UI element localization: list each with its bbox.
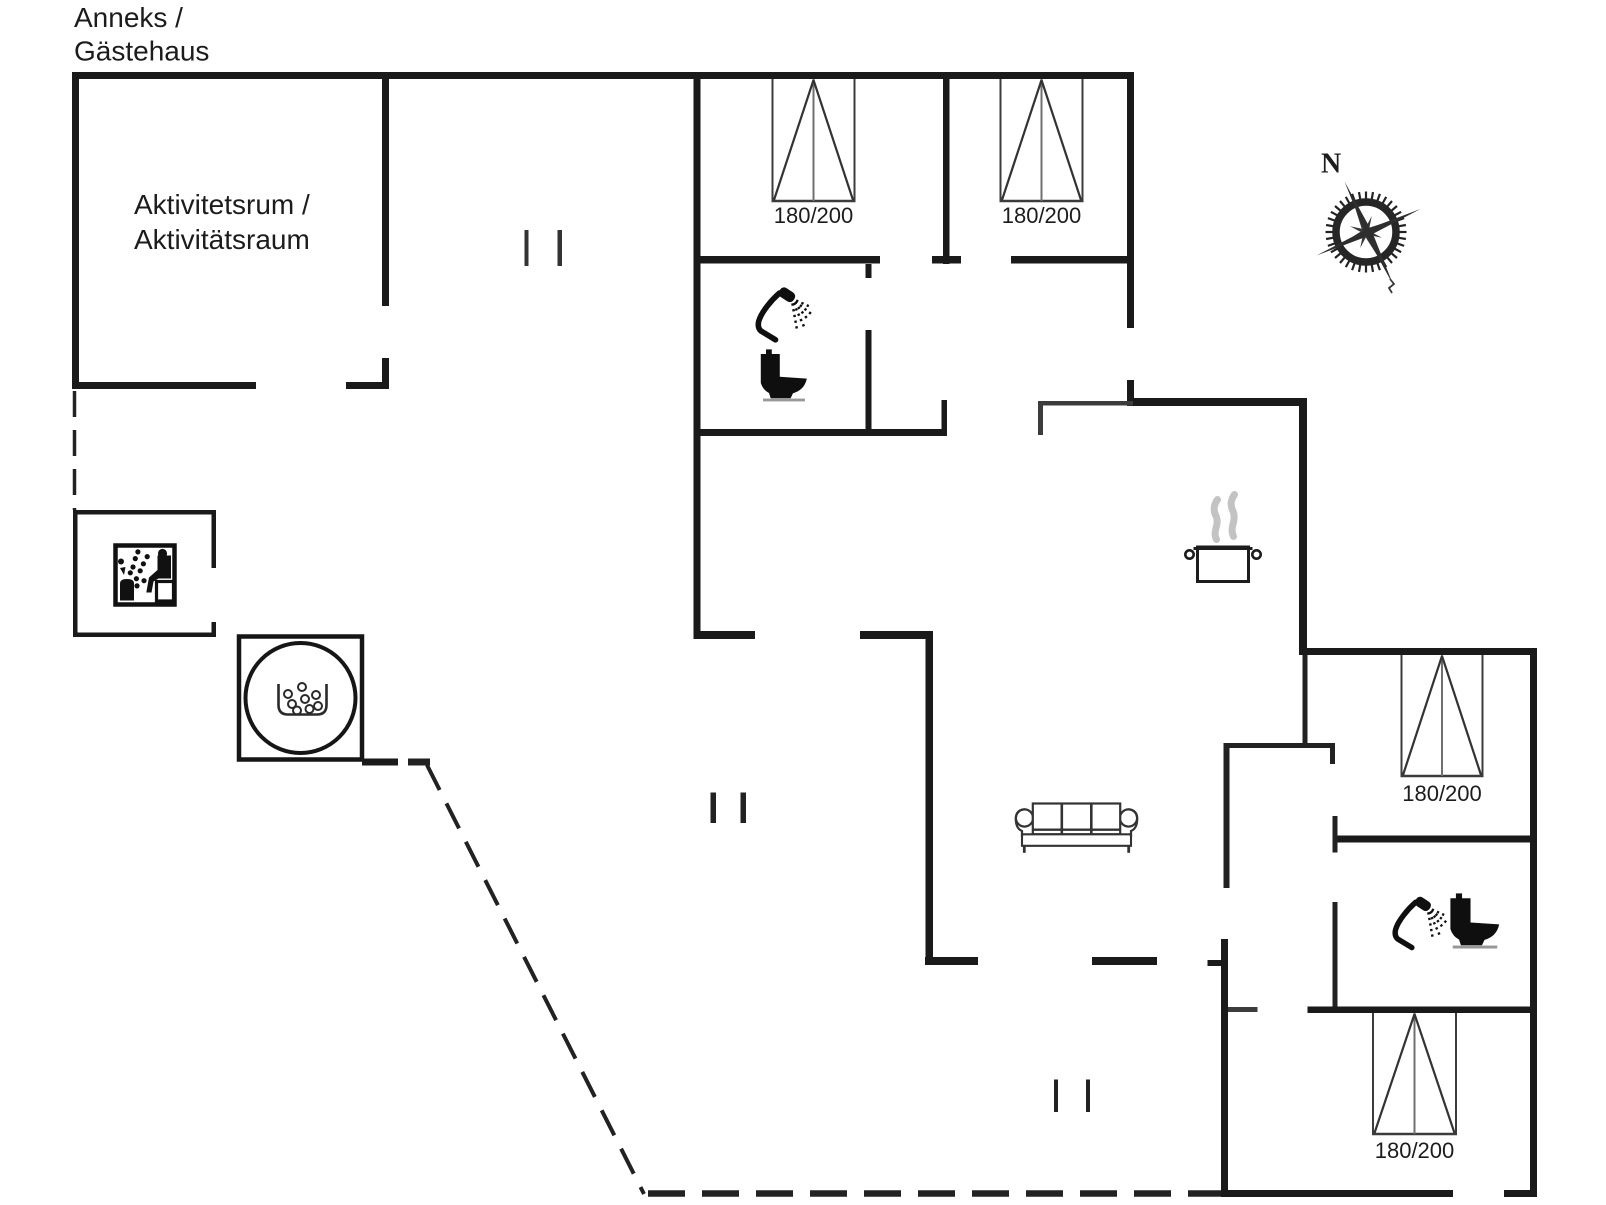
svg-text:Aktivitetsrum /: Aktivitetsrum / xyxy=(134,189,310,220)
svg-text:Gästehaus: Gästehaus xyxy=(74,36,209,67)
svg-text:180/200: 180/200 xyxy=(1375,1138,1455,1163)
svg-text:180/200: 180/200 xyxy=(1002,203,1082,228)
svg-text:180/200: 180/200 xyxy=(774,203,854,228)
svg-text:N: N xyxy=(1321,149,1341,180)
svg-text:Aktivitätsraum: Aktivitätsraum xyxy=(134,224,310,255)
svg-text:Anneks /: Anneks / xyxy=(74,2,183,33)
svg-text:180/200: 180/200 xyxy=(1402,781,1482,806)
